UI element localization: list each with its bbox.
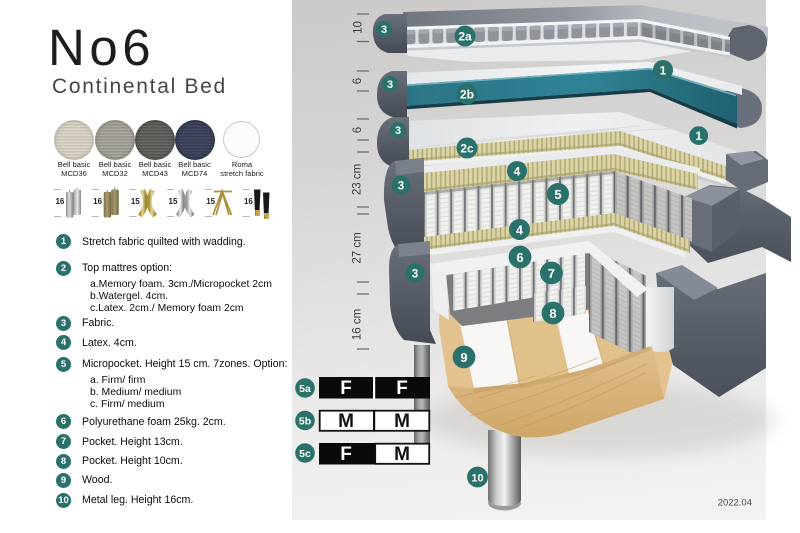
svg-text:16: 16 — [244, 197, 253, 206]
svg-text:3: 3 — [398, 181, 404, 193]
svg-text:10: 10 — [471, 473, 483, 485]
svg-text:M: M — [394, 411, 410, 432]
svg-text:2b: 2b — [460, 88, 474, 102]
svg-text:6: 6 — [352, 78, 364, 84]
svg-text:5c: 5c — [299, 448, 311, 460]
svg-text:F: F — [340, 378, 352, 399]
svg-text:3: 3 — [387, 79, 393, 91]
svg-text:16: 16 — [93, 197, 102, 206]
svg-text:2a: 2a — [458, 30, 472, 44]
svg-text:16: 16 — [55, 197, 64, 206]
svg-text:2c: 2c — [460, 142, 474, 156]
svg-text:F: F — [340, 444, 352, 465]
svg-text:3: 3 — [395, 125, 401, 137]
svg-text:M: M — [394, 444, 410, 465]
svg-text:5b: 5b — [299, 416, 311, 428]
svg-text:10: 10 — [353, 21, 365, 34]
svg-text:6: 6 — [352, 127, 364, 133]
svg-text:7: 7 — [548, 266, 555, 281]
svg-text:3: 3 — [381, 24, 387, 36]
svg-text:5a: 5a — [299, 383, 311, 395]
svg-text:1: 1 — [695, 131, 702, 143]
svg-text:15: 15 — [131, 197, 140, 206]
svg-text:16 cm: 16 cm — [352, 309, 364, 340]
svg-text:1: 1 — [660, 64, 667, 78]
svg-text:23 cm: 23 cm — [352, 164, 364, 195]
svg-text:M: M — [338, 411, 354, 432]
svg-text:9: 9 — [460, 350, 467, 365]
svg-text:3: 3 — [412, 269, 418, 281]
svg-text:15: 15 — [206, 197, 215, 206]
svg-text:5: 5 — [554, 187, 561, 202]
svg-text:4: 4 — [514, 165, 521, 179]
svg-text:27 cm: 27 cm — [352, 232, 364, 263]
svg-text:F: F — [396, 378, 408, 399]
svg-text:6: 6 — [516, 250, 523, 265]
svg-text:15: 15 — [169, 197, 178, 206]
svg-text:4: 4 — [516, 224, 523, 238]
svg-text:2022.04: 2022.04 — [718, 498, 752, 509]
svg-text:8: 8 — [549, 306, 556, 321]
